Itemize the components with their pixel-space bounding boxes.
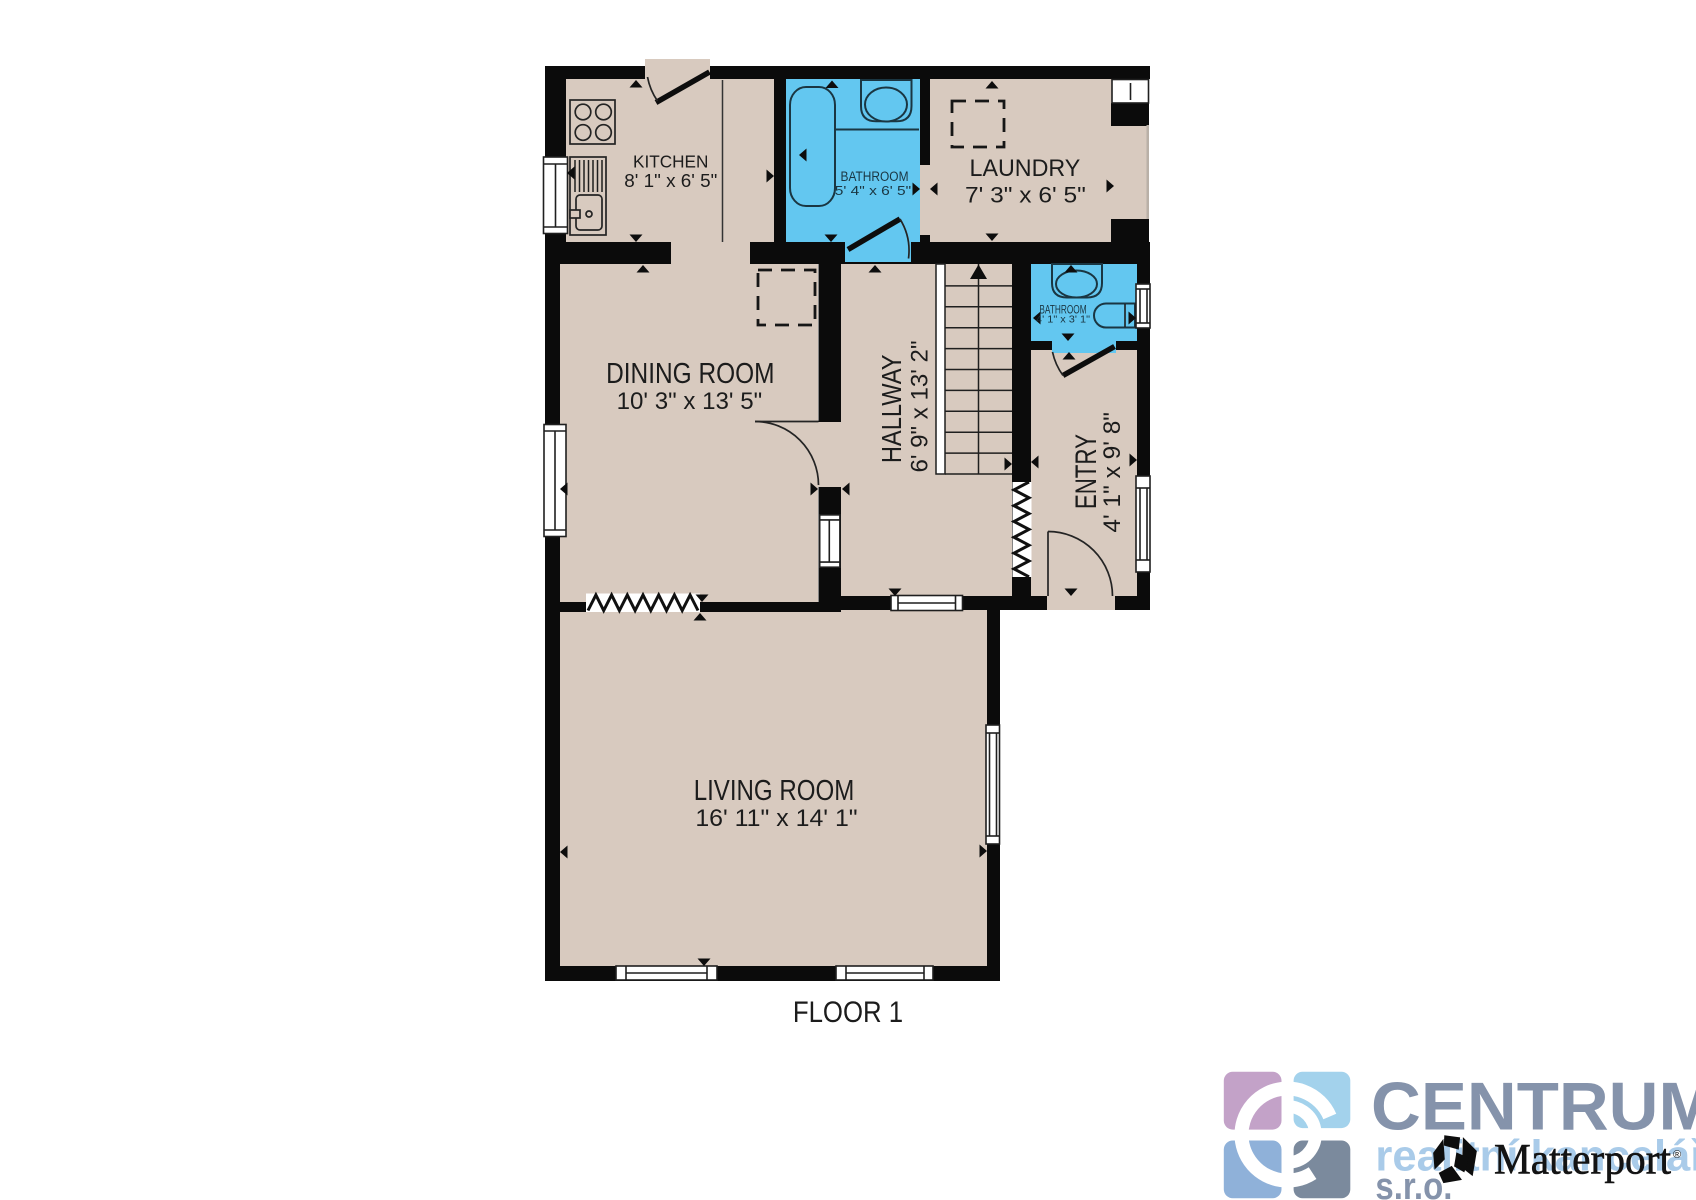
svg-text:FLOOR 1: FLOOR 1: [793, 996, 903, 1029]
svg-text:5' 4" x 6' 5": 5' 4" x 6' 5": [835, 184, 911, 198]
svg-text:®: ®: [1673, 1149, 1681, 1161]
svg-text:LIVING ROOM: LIVING ROOM: [694, 775, 855, 807]
svg-text:4' 1" x 3' 1": 4' 1" x 3' 1": [1036, 314, 1090, 326]
svg-text:16' 11" x 14' 1": 16' 11" x 14' 1": [695, 805, 857, 832]
svg-text:LAUNDRY: LAUNDRY: [970, 155, 1081, 182]
svg-text:4' 1" x 9' 8": 4' 1" x 9' 8": [1099, 412, 1126, 533]
svg-text:s.r.o.: s.r.o.: [1375, 1166, 1452, 1200]
svg-text:10' 3" x 13' 5": 10' 3" x 13' 5": [617, 388, 763, 415]
svg-text:ENTRY: ENTRY: [1070, 434, 1103, 509]
svg-text:8' 1" x 6' 5": 8' 1" x 6' 5": [624, 171, 717, 191]
svg-text:6' 9" x 13' 2": 6' 9" x 13' 2": [907, 341, 934, 473]
svg-text:7' 3" x 6' 5": 7' 3" x 6' 5": [965, 183, 1086, 208]
svg-text:Matterport: Matterport: [1494, 1137, 1671, 1184]
svg-text:DINING ROOM: DINING ROOM: [606, 358, 774, 390]
svg-text:HALLWAY: HALLWAY: [876, 354, 907, 463]
svg-text:KITCHEN: KITCHEN: [633, 152, 708, 172]
svg-text:BATHROOM: BATHROOM: [841, 169, 909, 184]
